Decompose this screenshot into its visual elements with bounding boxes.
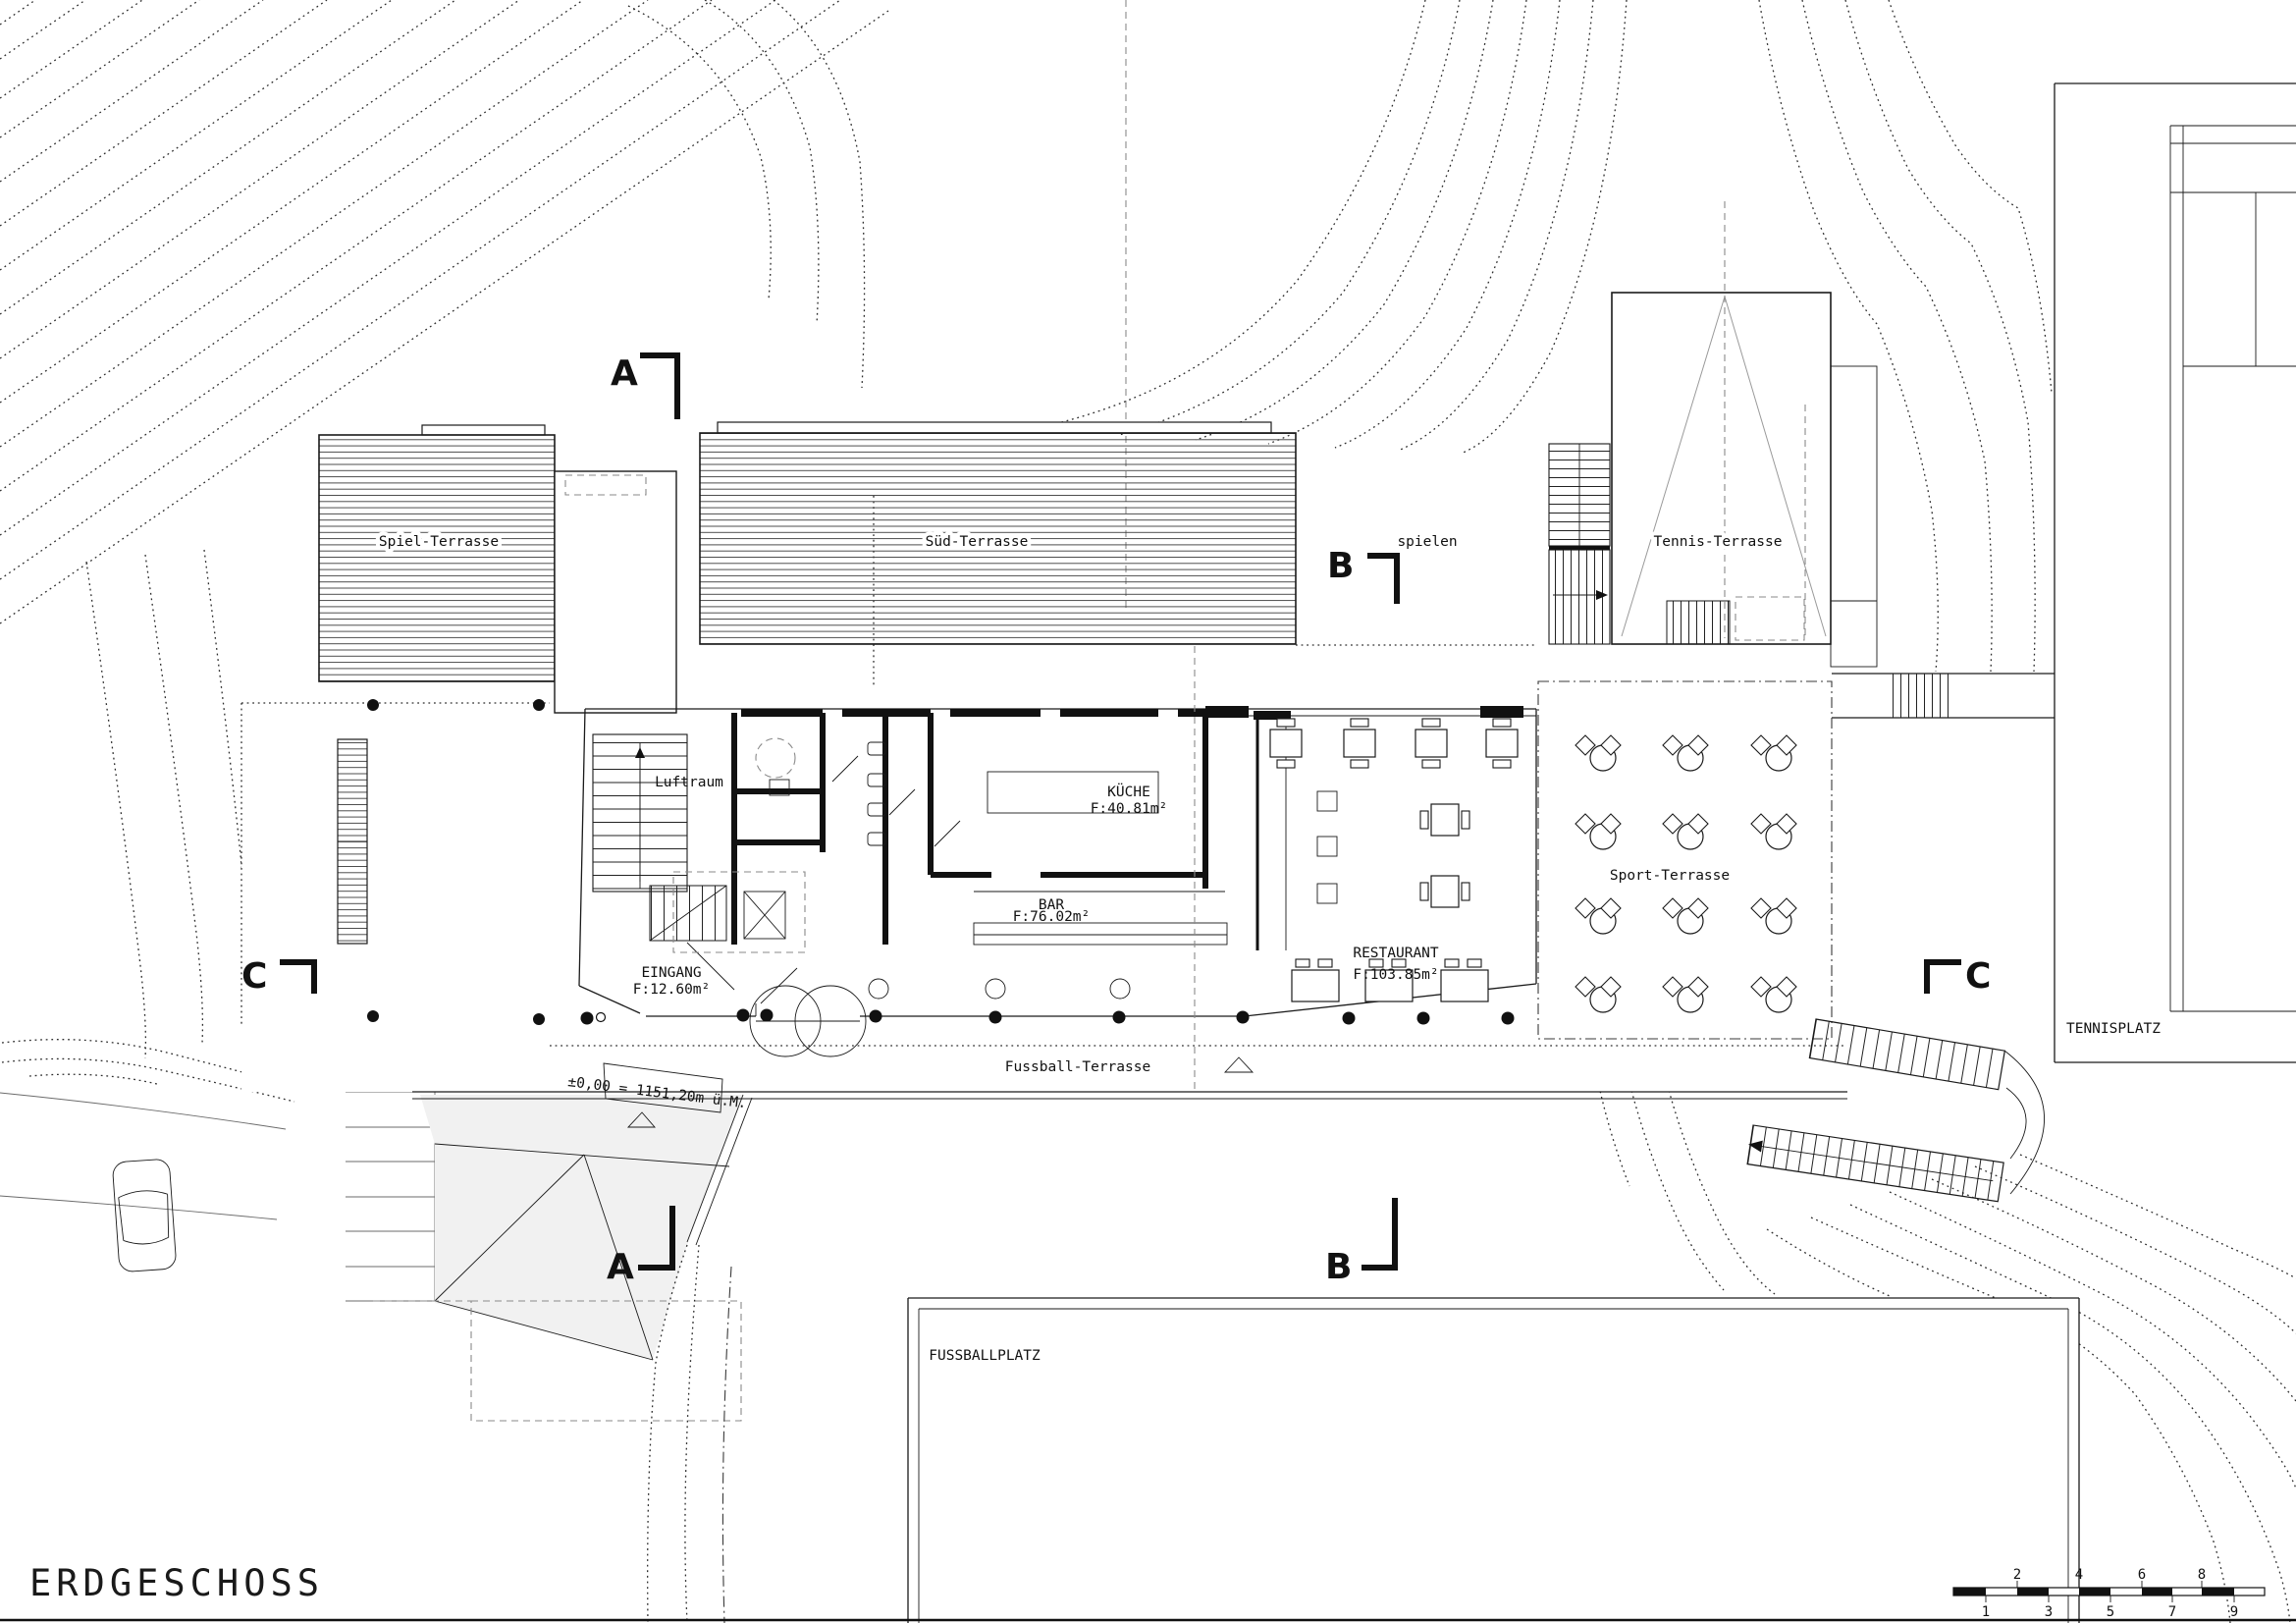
section-marker-b-bottom: B — [1325, 1198, 1395, 1287]
scale-number: 5 — [2107, 1604, 2114, 1620]
floor-plan-drawing: TENNISPLATZ FUSSBALLPLATZ — [0, 0, 2296, 1623]
bar-area: F:76.02m² — [1013, 909, 1091, 925]
scale-number: 1 — [1982, 1604, 1990, 1620]
secondary-stair — [650, 886, 726, 941]
eingang-area: F:12.60m² — [633, 982, 711, 998]
sued-terrasse-label: Süd-Terrasse — [926, 534, 1029, 550]
column-dot — [367, 1010, 379, 1022]
section-letter: B — [1325, 1247, 1352, 1287]
section-letter: C — [241, 956, 267, 997]
drawing-title: ERDGESCHOSS — [29, 1562, 324, 1604]
car — [112, 1159, 177, 1272]
restaurant-label: RESTAURANT — [1353, 946, 1439, 961]
kueche-area: F:40.81m² — [1091, 801, 1168, 817]
spielen-label: spielen — [1397, 534, 1457, 550]
spiel-terrasse-label: Spiel-Terrasse — [379, 534, 499, 550]
column-dot — [367, 699, 379, 711]
parking-lot — [346, 1057, 435, 1301]
section-letter: C — [1965, 956, 1991, 997]
section-marker-b-top: B — [1327, 546, 1397, 604]
scale-number: 4 — [2075, 1567, 2083, 1583]
tennis-building: Tennis-Terrasse — [1612, 201, 1877, 667]
floor-plan-page: TENNISPLATZ FUSSBALLPLATZ — [0, 0, 2296, 1623]
entrance-apron — [420, 1095, 752, 1360]
scale-number: 9 — [2230, 1604, 2238, 1620]
section-marker-a-top: A — [611, 353, 677, 419]
sued-terrasse: Süd-Terrasse — [700, 422, 1296, 644]
tennis-terrasse-label: Tennis-Terrasse — [1654, 534, 1783, 550]
sport-terrasse-label: Sport-Terrasse — [1610, 868, 1730, 884]
column-dot — [533, 1013, 545, 1025]
luftraum-label: Luftraum — [655, 775, 723, 790]
section-letter: A — [611, 353, 638, 394]
kueche-label: KÜCHE — [1107, 783, 1150, 800]
spiel-terrasse: Spiel-Terrasse — [319, 425, 555, 681]
fussballplatz-label: FUSSBALLPLATZ — [929, 1348, 1041, 1364]
terrace-connector-building — [555, 471, 676, 713]
fussballplatz: FUSSBALLPLATZ — [908, 1298, 2079, 1623]
scale-number: 3 — [2045, 1604, 2053, 1620]
scale-number: 2 — [2013, 1567, 2021, 1583]
east-ramp-strip — [1831, 366, 1877, 667]
tennisplatz-label: TENNISPLATZ — [2066, 1021, 2161, 1037]
section-letter: A — [607, 1247, 634, 1287]
east-walkway — [1832, 674, 2055, 718]
scale-number: 8 — [2198, 1567, 2206, 1583]
terrain-contours-left-low — [86, 550, 248, 1058]
tennisplatz: TENNISPLATZ — [2055, 83, 2296, 1062]
restaurant-area: F:103.85m² — [1353, 967, 1438, 983]
eingang-label: EINGANG — [641, 965, 701, 981]
access-road — [0, 1093, 286, 1219]
section-letter: B — [1327, 546, 1354, 586]
fussball-terrasse-label: Fussball-Terrasse — [1005, 1059, 1150, 1075]
column-dot — [533, 699, 545, 711]
scale-number: 7 — [2168, 1604, 2176, 1620]
section-marker-c-right: C — [1927, 956, 1991, 997]
tennis-west-stairs — [1549, 444, 1610, 644]
scale-number: 6 — [2138, 1567, 2146, 1583]
main-stair — [593, 734, 687, 892]
